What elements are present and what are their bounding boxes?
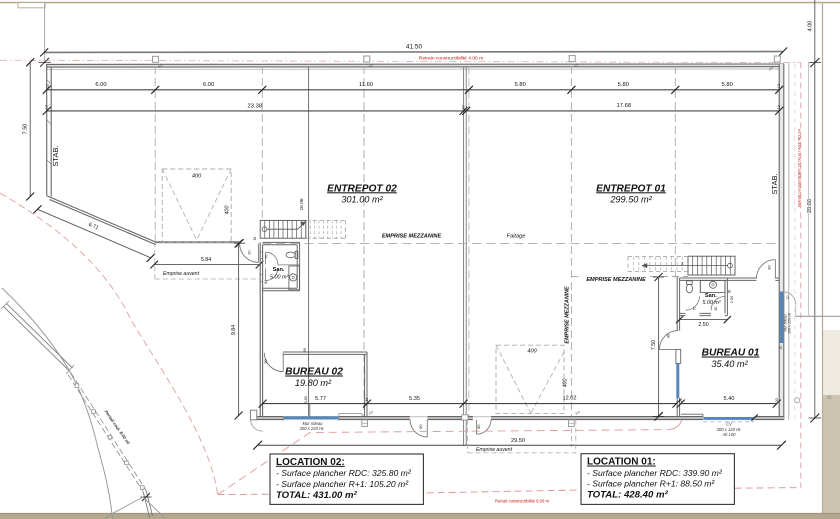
svg-text:12.02: 12.02: [563, 396, 577, 402]
svg-text:STAB.: STAB.: [770, 173, 779, 194]
svg-text:ENTREPOT 02: ENTREPOT 02: [327, 183, 397, 194]
svg-text:4.00: 4.00: [808, 21, 814, 32]
svg-text:29.50: 29.50: [511, 438, 525, 444]
svg-text:90: 90: [768, 265, 772, 269]
svg-text:12: 12: [46, 84, 50, 88]
svg-text:2.50: 2.50: [698, 322, 708, 328]
svg-text:400: 400: [192, 174, 202, 180]
svg-text:90: 90: [248, 250, 252, 254]
svg-text:San.: San.: [273, 267, 285, 273]
svg-text:80: 80: [264, 280, 268, 284]
svg-text:- Surface plancher R+1: 105.20: - Surface plancher R+1: 105.20 m²: [276, 479, 409, 489]
svg-text:STAB.: STAB.: [51, 145, 60, 166]
svg-text:20: 20: [462, 105, 466, 109]
svg-text:84: 84: [253, 237, 257, 241]
svg-text:19.80 m²: 19.80 m²: [295, 378, 332, 388]
svg-text:90: 90: [303, 348, 307, 352]
svg-text:28: 28: [679, 398, 683, 402]
svg-text:30: 30: [779, 346, 783, 350]
svg-text:TOTAL: 431.00 m²: TOTAL: 431.00 m²: [276, 490, 357, 501]
svg-text:5.84: 5.84: [201, 257, 211, 263]
svg-text:Emprise auvent: Emprise auvent: [163, 271, 200, 277]
svg-text:9.84: 9.84: [231, 325, 237, 335]
svg-text:Alt 100: Alt 100: [721, 432, 736, 437]
svg-text:5.35: 5.35: [409, 396, 420, 402]
svg-text:5.40: 5.40: [724, 396, 735, 402]
svg-text:90: 90: [264, 359, 268, 363]
svg-text:Retrait constructibilité 6.00: Retrait constructibilité 6.00 m: [495, 498, 550, 503]
svg-text:LOCATION 01:: LOCATION 01:: [587, 457, 656, 468]
svg-text:5.77: 5.77: [315, 396, 326, 402]
svg-text:2.00: 2.00: [730, 296, 734, 303]
svg-text:7.50: 7.50: [23, 124, 29, 135]
svg-text:TOTAL: 428.40 m²: TOTAL: 428.40 m²: [587, 490, 668, 501]
svg-text:3.60: 3.60: [304, 396, 308, 403]
svg-text:16.06: 16.06: [299, 198, 305, 210]
svg-text:BUREAU 01: BUREAU 01: [702, 348, 760, 359]
svg-text:Retrain constructibilité 4.00: Retrain constructibilité 4.00 m: [419, 56, 483, 62]
svg-text:70: 70: [265, 255, 269, 259]
svg-text:EMPRISE MEZZANINE: EMPRISE MEZZANINE: [382, 234, 442, 240]
svg-text:400: 400: [527, 348, 537, 354]
svg-text:5.80: 5.80: [515, 82, 526, 88]
svg-text:41.50: 41.50: [406, 43, 423, 50]
svg-text:299.50 m²: 299.50 m²: [609, 195, 652, 205]
svg-text:300 x 220 Ht.: 300 x 220 Ht.: [300, 426, 325, 431]
svg-text:13: 13: [777, 84, 781, 88]
svg-text:80: 80: [714, 307, 718, 311]
svg-text:23.38: 23.38: [248, 103, 263, 109]
svg-text:400: 400: [225, 206, 231, 215]
svg-text:80: 80: [477, 424, 481, 428]
svg-text:30: 30: [786, 296, 790, 300]
svg-text:10: 10: [365, 398, 369, 402]
svg-text:20.00: 20.00: [807, 199, 813, 213]
svg-text:12: 12: [777, 105, 781, 109]
svg-text:17.68: 17.68: [617, 103, 632, 109]
svg-text:301.00 m²: 301.00 m²: [341, 195, 383, 205]
svg-text:70: 70: [693, 307, 697, 311]
svg-text:400: 400: [563, 379, 569, 388]
svg-text:90: 90: [667, 334, 671, 338]
svg-text:35.40 m²: 35.40 m²: [711, 359, 748, 369]
svg-text:11.60: 11.60: [359, 82, 373, 88]
svg-text:5.80: 5.80: [618, 82, 629, 88]
svg-text:San.: San.: [705, 293, 717, 299]
svg-text:6.00: 6.00: [95, 82, 106, 88]
svg-text:7.50: 7.50: [651, 340, 657, 350]
svg-text:12: 12: [45, 105, 49, 109]
svg-text:74: 74: [681, 262, 685, 266]
svg-text:300 x 220 Ht.: 300 x 220 Ht.: [788, 312, 792, 333]
svg-text:Emprise auvent: Emprise auvent: [476, 447, 513, 453]
svg-text:LOCATION 02:: LOCATION 02:: [276, 457, 345, 468]
svg-text:30: 30: [728, 290, 732, 294]
svg-text:Faitage: Faitage: [507, 234, 526, 240]
svg-text:90: 90: [419, 424, 423, 428]
svg-text:BUREAU 02: BUREAU 02: [285, 367, 343, 378]
svg-text:EMPRISE MEZZANINE: EMPRISE MEZZANINE: [586, 277, 646, 283]
svg-text:ENTREPOT 01: ENTREPOT 01: [596, 183, 666, 194]
svg-text:5.80: 5.80: [722, 82, 733, 88]
svg-text:- Surface plancher RDC: 339.90: - Surface plancher RDC: 339.90 m²: [587, 468, 723, 478]
svg-text:5.00 m²: 5.00 m²: [270, 275, 288, 281]
svg-text:- Surface plancher R+1: 88.50: - Surface plancher R+1: 88.50 m²: [587, 479, 715, 489]
svg-text:30: 30: [775, 398, 779, 402]
svg-text:- Surface plancher RDC: 325.80: - Surface plancher RDC: 325.80 m²: [276, 468, 412, 478]
svg-text:01: 01: [827, 395, 832, 400]
svg-text:5.00 m²: 5.00 m²: [702, 300, 720, 306]
svg-text:6.00: 6.00: [203, 82, 214, 88]
svg-text:EMPRISE MEZZANINE: EMPRISE MEZZANINE: [564, 286, 570, 344]
